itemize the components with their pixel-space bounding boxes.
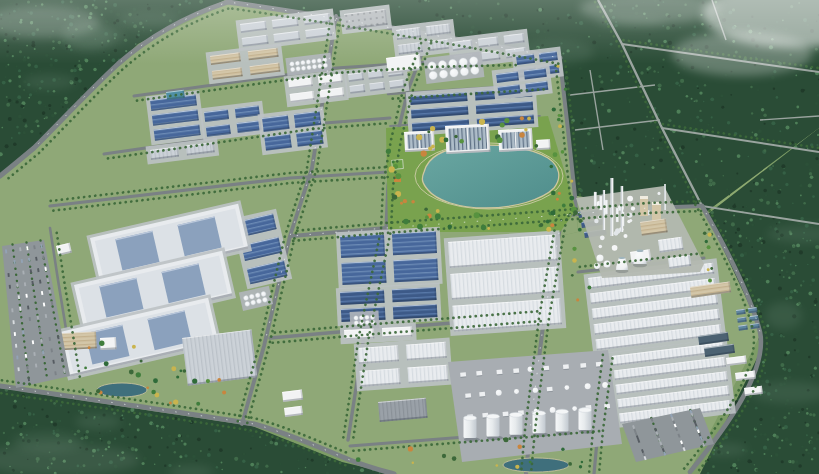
- forest-canopy: [71, 430, 73, 432]
- forest-canopy: [764, 433, 767, 436]
- forest-canopy: [724, 435, 728, 439]
- forest-canopy: [101, 435, 102, 436]
- forest-canopy: [265, 445, 266, 446]
- forest-canopy: [815, 157, 818, 160]
- forest-canopy: [168, 464, 171, 467]
- park-tree-icon: [395, 173, 401, 179]
- forest-canopy: [810, 376, 812, 378]
- park-tree-icon: [428, 146, 432, 150]
- forest-canopy: [785, 183, 788, 186]
- forest-canopy: [721, 106, 724, 109]
- process-vessel: [533, 388, 538, 393]
- forest-canopy: [605, 182, 608, 185]
- forest-canopy: [779, 334, 782, 337]
- forest-canopy: [744, 441, 746, 443]
- forest-canopy: [769, 167, 773, 171]
- park-tree-icon: [386, 149, 391, 154]
- forest-canopy: [728, 194, 730, 196]
- forest-canopy: [761, 178, 764, 181]
- lawn-tree-icon: [217, 378, 221, 382]
- forest-canopy: [627, 97, 630, 100]
- storage-tank-cylinder: [556, 412, 569, 432]
- forest-canopy: [754, 133, 758, 137]
- forest-canopy: [753, 182, 755, 184]
- forest-canopy: [815, 298, 817, 300]
- forest-canopy: [783, 336, 785, 338]
- forest-canopy: [60, 103, 63, 106]
- forest-canopy: [711, 116, 713, 118]
- forest-canopy: [45, 105, 47, 107]
- forest-canopy: [18, 75, 21, 78]
- lawn-tree-icon: [140, 359, 143, 362]
- forest-canopy: [23, 118, 27, 122]
- forest-canopy: [616, 71, 619, 74]
- forest-canopy: [174, 451, 176, 453]
- forest-canopy: [813, 447, 816, 450]
- forest-canopy: [781, 269, 783, 271]
- verge-tree-icon: [578, 228, 582, 232]
- forest-canopy: [157, 428, 159, 430]
- pond-south: [503, 458, 569, 472]
- forest-canopy: [754, 435, 756, 437]
- lawn-tree-icon: [192, 379, 197, 384]
- forest-canopy: [23, 131, 26, 134]
- forest-canopy: [771, 455, 772, 456]
- production-hall-building: [393, 258, 438, 282]
- verge-tree-icon: [561, 150, 565, 154]
- forest-canopy: [192, 459, 194, 461]
- forest-canopy: [760, 433, 763, 436]
- forest-canopy: [705, 174, 708, 177]
- forest-canopy: [74, 400, 76, 402]
- forest-canopy: [759, 199, 761, 201]
- forest-canopy: [107, 441, 111, 445]
- industrial-park-render: [0, 0, 819, 474]
- forest-canopy: [30, 72, 32, 74]
- forest-canopy: [752, 132, 754, 134]
- parked-car: [12, 320, 14, 324]
- forest-canopy: [801, 445, 803, 447]
- park-tree-icon: [540, 223, 544, 227]
- forest-canopy: [686, 191, 688, 193]
- forest-mist: [75, 414, 121, 430]
- forest-canopy: [6, 441, 10, 445]
- forest-canopy: [694, 101, 695, 102]
- forest-canopy: [766, 264, 769, 267]
- forest-canopy: [584, 118, 586, 120]
- forest-canopy: [585, 147, 587, 149]
- forest-canopy: [757, 89, 759, 91]
- park-tree-icon: [421, 150, 427, 156]
- forest-canopy: [763, 453, 765, 455]
- park-tree-icon: [569, 196, 574, 201]
- forest-canopy: [723, 222, 725, 224]
- process-unit: [503, 412, 509, 417]
- forest-canopy: [616, 136, 620, 140]
- park-tree-icon: [459, 139, 464, 144]
- verge-tree-icon: [707, 268, 710, 271]
- forest-canopy: [737, 470, 740, 473]
- forest-canopy: [792, 271, 796, 275]
- forest-canopy: [29, 93, 32, 96]
- forest-canopy: [100, 438, 102, 440]
- forest-canopy: [798, 302, 801, 305]
- process-vessel: [496, 390, 502, 396]
- verge-tree-icon: [707, 233, 711, 237]
- lawn-tree-icon: [99, 341, 104, 346]
- forest-canopy: [784, 354, 787, 357]
- forest-canopy: [795, 122, 798, 125]
- forest-canopy: [74, 433, 77, 436]
- forest-canopy: [64, 97, 67, 100]
- forest-canopy: [699, 154, 701, 156]
- forest-canopy: [776, 200, 778, 202]
- plant-unit: [657, 192, 660, 195]
- forest-canopy: [737, 154, 741, 158]
- forest-canopy: [815, 102, 818, 105]
- forest-canopy: [73, 68, 77, 72]
- pond-southwest: [97, 383, 147, 397]
- forest-canopy: [806, 434, 808, 436]
- park-tree-icon: [448, 225, 453, 230]
- verge-tree-icon: [551, 191, 556, 196]
- aerial-scene: [0, 0, 819, 474]
- forest-canopy: [750, 190, 752, 192]
- forest-canopy: [799, 184, 802, 187]
- process-vessel: [514, 389, 519, 394]
- warehouse: [182, 329, 257, 385]
- park-tree-icon: [427, 130, 430, 133]
- park-tree-icon: [562, 204, 566, 208]
- forest-mist: [23, 74, 76, 89]
- forest-canopy: [807, 264, 808, 265]
- process-unit: [547, 387, 553, 392]
- forest-canopy: [816, 144, 818, 146]
- verge-tree-icon: [561, 448, 564, 451]
- forest-canopy: [41, 408, 43, 410]
- forest-canopy: [755, 182, 759, 186]
- park-tree-icon: [497, 137, 503, 143]
- lawn-tree-icon: [151, 390, 156, 395]
- forest-canopy: [781, 439, 783, 441]
- storage-silo: [365, 315, 370, 320]
- verge-tree-icon: [558, 192, 561, 195]
- forest-canopy: [179, 455, 182, 458]
- forest-canopy: [135, 415, 139, 419]
- park-tree-icon: [389, 166, 395, 172]
- forest-canopy: [259, 436, 261, 438]
- forest-canopy: [7, 64, 9, 66]
- forest-canopy: [192, 455, 195, 458]
- plant-unit: [629, 219, 632, 222]
- forest-canopy: [770, 333, 773, 336]
- forest-canopy: [773, 88, 775, 90]
- forest-canopy: [776, 202, 779, 205]
- parked-car: [14, 332, 16, 336]
- verge-tree-icon: [452, 456, 457, 461]
- lawn-tree-icon: [104, 361, 109, 366]
- park-tree-icon: [551, 211, 556, 216]
- forest-canopy: [710, 97, 714, 101]
- forest-canopy: [805, 423, 809, 427]
- forest-canopy: [49, 108, 51, 110]
- campus-office: [445, 124, 490, 154]
- forest-canopy: [710, 211, 714, 215]
- forest-canopy: [799, 250, 803, 254]
- forest-canopy: [265, 465, 268, 468]
- forest-canopy: [646, 103, 648, 105]
- forest-canopy: [303, 451, 305, 453]
- forest-canopy: [79, 401, 81, 403]
- forest-canopy: [54, 405, 56, 407]
- verge-tree-icon: [515, 465, 519, 469]
- verge-tree-icon: [529, 461, 532, 464]
- verge-tree-icon: [703, 231, 707, 235]
- forest-canopy: [792, 245, 794, 247]
- forest-canopy: [657, 71, 658, 72]
- forest-canopy: [80, 410, 84, 414]
- forest-canopy: [613, 85, 615, 87]
- park-tree-icon: [424, 208, 428, 212]
- forest-canopy: [56, 419, 60, 423]
- forest-canopy: [221, 462, 223, 464]
- forest-canopy: [740, 253, 744, 257]
- forest-canopy: [218, 430, 221, 433]
- forest-canopy: [791, 407, 793, 409]
- forest-canopy: [62, 432, 63, 433]
- forest-canopy: [779, 274, 781, 276]
- forest-canopy: [19, 425, 23, 429]
- forest-canopy: [325, 464, 326, 465]
- forest-canopy: [15, 100, 18, 103]
- forest-canopy: [23, 422, 26, 425]
- forest-canopy: [791, 460, 795, 464]
- verge-tree-icon: [705, 240, 708, 243]
- verge-tree-icon: [568, 462, 572, 466]
- forest-canopy: [726, 188, 728, 190]
- park-tree-icon: [425, 215, 429, 219]
- forest-canopy: [781, 460, 784, 463]
- process-vessel: [572, 406, 577, 411]
- forest-canopy: [780, 363, 784, 367]
- forest-canopy: [43, 103, 45, 105]
- forest-canopy: [214, 429, 218, 433]
- forest-canopy: [786, 270, 789, 273]
- forest-canopy: [234, 457, 238, 461]
- lawn-tree-icon: [171, 366, 176, 371]
- plant-unit: [612, 245, 618, 251]
- forest-canopy: [81, 69, 83, 71]
- forest-canopy: [800, 284, 802, 286]
- verge-tree-icon: [442, 454, 446, 458]
- forest-canopy: [108, 405, 110, 407]
- forest-canopy: [60, 404, 62, 406]
- forest-canopy: [746, 206, 748, 208]
- forest-canopy: [816, 437, 819, 440]
- forest-canopy: [651, 166, 654, 169]
- forest-canopy: [809, 172, 812, 175]
- storage-tank-cylinder: [487, 416, 500, 436]
- forest-canopy: [645, 136, 647, 138]
- forest-canopy: [647, 72, 649, 74]
- lawn-tree-icon: [179, 369, 182, 372]
- forest-canopy: [595, 145, 597, 147]
- forest-canopy: [621, 151, 625, 155]
- forest-canopy: [298, 468, 299, 469]
- verge-tree-icon: [552, 107, 556, 111]
- forest-canopy: [680, 79, 684, 83]
- forest-canopy: [584, 77, 586, 79]
- forest-canopy: [25, 125, 28, 128]
- process-unit: [465, 393, 471, 398]
- production-hall-building: [393, 304, 438, 319]
- forest-canopy: [221, 469, 223, 471]
- lawn-tree-icon: [129, 370, 134, 375]
- forest-canopy: [647, 130, 649, 132]
- forest-canopy: [764, 372, 766, 374]
- forest-canopy: [790, 290, 793, 293]
- forest-canopy: [207, 453, 211, 457]
- forest-canopy: [712, 127, 714, 129]
- forest-canopy: [778, 287, 782, 291]
- forest-canopy: [628, 71, 630, 73]
- forest-canopy: [5, 144, 9, 148]
- forest-canopy: [793, 338, 796, 341]
- forest-canopy: [581, 77, 583, 79]
- forest-canopy: [704, 131, 705, 132]
- forest-canopy: [709, 179, 713, 183]
- forest-canopy: [662, 66, 664, 68]
- park-tree-icon: [444, 138, 449, 143]
- forest-canopy: [28, 97, 30, 99]
- forest-canopy: [789, 376, 792, 379]
- verge-tree-icon: [707, 245, 711, 249]
- forest-canopy: [305, 467, 307, 469]
- verge-tree-icon: [550, 165, 554, 169]
- forest-canopy: [759, 312, 762, 315]
- parked-car: [9, 285, 11, 289]
- forest-canopy: [86, 430, 90, 434]
- process-unit: [580, 363, 586, 368]
- forest-canopy: [633, 127, 636, 130]
- park-tree-icon: [411, 200, 415, 204]
- forest-canopy: [595, 182, 597, 184]
- forest-canopy: [606, 94, 608, 96]
- forest-canopy: [16, 65, 18, 67]
- production-hall-building: [341, 261, 386, 285]
- forest-canopy: [39, 132, 41, 134]
- forest-canopy: [795, 460, 799, 464]
- forest-canopy: [74, 65, 76, 67]
- forest-canopy: [11, 137, 13, 139]
- forest-canopy: [783, 368, 786, 371]
- forest-canopy: [183, 442, 186, 445]
- forest-canopy: [90, 440, 94, 444]
- forest-canopy: [802, 280, 804, 282]
- forest-canopy: [251, 434, 254, 437]
- forest-canopy: [1, 127, 3, 129]
- forest-canopy: [695, 160, 698, 163]
- forest-canopy: [730, 94, 732, 96]
- forest-canopy: [733, 214, 735, 216]
- forest-canopy: [159, 454, 161, 456]
- forest-canopy: [122, 417, 124, 419]
- forest-canopy: [610, 79, 612, 81]
- forest-canopy: [791, 141, 794, 144]
- forest-canopy: [8, 117, 12, 121]
- forest-canopy: [790, 263, 792, 265]
- forest-canopy: [788, 369, 792, 373]
- forest-canopy: [766, 324, 769, 327]
- plant-unit: [623, 234, 627, 238]
- forest-canopy: [200, 450, 202, 452]
- lawn-tree-icon: [153, 378, 158, 383]
- forest-canopy: [697, 87, 699, 89]
- forest-canopy: [731, 222, 735, 226]
- forest-canopy: [810, 175, 814, 179]
- forest-canopy: [725, 220, 727, 222]
- forest-canopy: [49, 90, 51, 92]
- forest-canopy: [775, 255, 778, 258]
- forest-canopy: [285, 444, 288, 447]
- forest-canopy: [56, 428, 60, 432]
- park-tree-icon: [546, 227, 551, 232]
- forest-canopy: [811, 278, 815, 282]
- forest-canopy: [13, 142, 17, 146]
- process-vessel: [565, 385, 570, 390]
- process-vessel: [550, 407, 556, 413]
- forest-canopy: [718, 147, 722, 151]
- forest-canopy: [757, 423, 758, 424]
- forest-canopy: [17, 95, 21, 99]
- forest-canopy: [729, 245, 732, 248]
- forest-canopy: [753, 289, 755, 291]
- forest-canopy: [172, 442, 175, 445]
- forest-canopy: [601, 103, 604, 106]
- verge-tree-icon: [412, 461, 414, 463]
- forest-canopy: [785, 437, 789, 441]
- forest-canopy: [812, 195, 815, 198]
- forest-canopy: [760, 301, 762, 303]
- forest-canopy: [681, 145, 685, 149]
- park-tree-icon: [527, 117, 531, 121]
- forest-canopy: [78, 410, 80, 412]
- forest-canopy: [307, 458, 309, 460]
- plant-unit: [627, 196, 633, 202]
- forest-canopy: [28, 412, 32, 416]
- forest-canopy: [590, 154, 594, 158]
- forest-canopy: [786, 351, 790, 355]
- forest-canopy: [750, 86, 752, 88]
- parked-car: [7, 273, 9, 277]
- forest-canopy: [775, 472, 777, 474]
- park-tree-icon: [550, 223, 554, 227]
- forest-canopy: [691, 98, 693, 100]
- process-unit: [479, 392, 485, 397]
- forest-canopy: [749, 218, 752, 221]
- forest-canopy: [788, 460, 790, 462]
- forest-canopy: [720, 94, 723, 97]
- process-unit: [460, 372, 466, 377]
- lawn-tree-icon: [84, 367, 87, 370]
- forest-canopy: [651, 148, 654, 151]
- forest-canopy: [6, 96, 8, 98]
- storage-silo: [354, 316, 359, 321]
- forest-canopy: [47, 90, 49, 92]
- forest-canopy: [39, 70, 41, 72]
- forest-canopy: [360, 468, 364, 472]
- forest-canopy: [138, 448, 140, 450]
